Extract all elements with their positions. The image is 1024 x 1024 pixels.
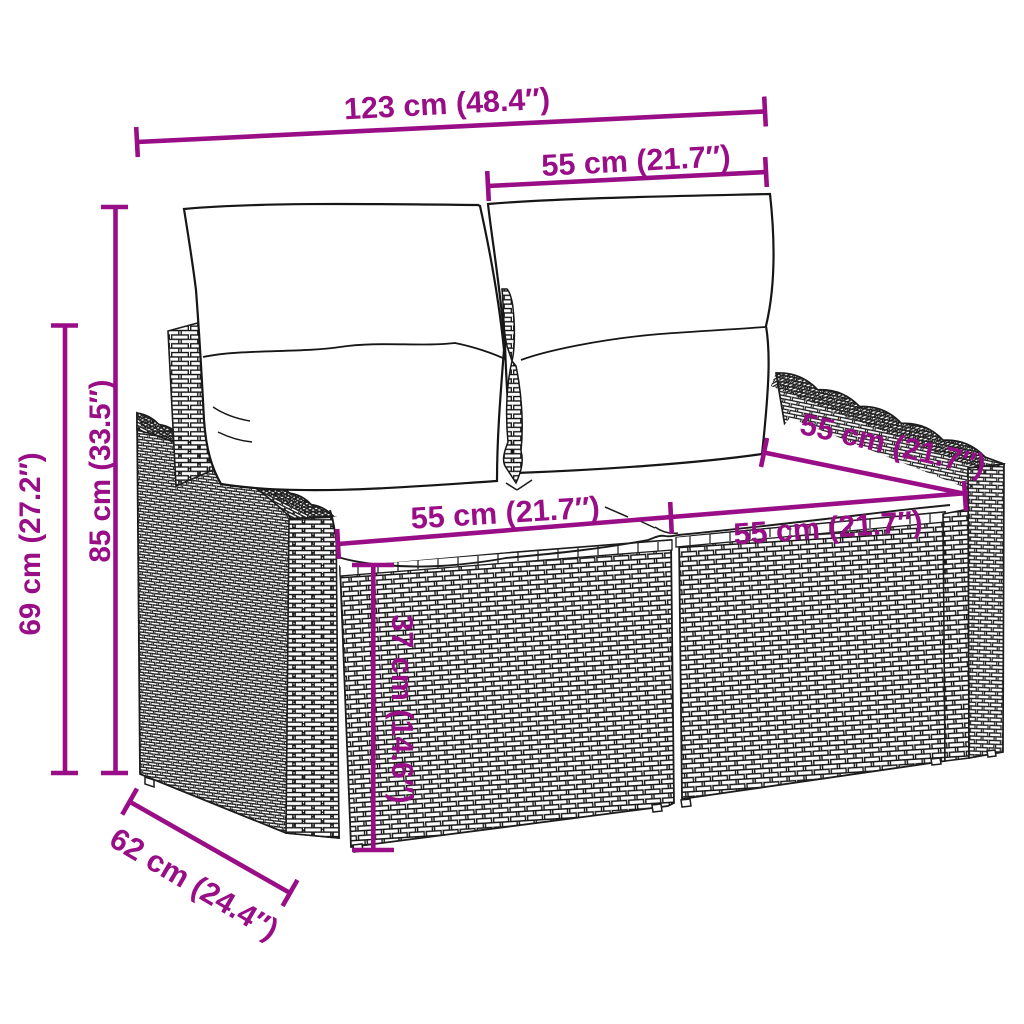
- svg-text:69 cm (27.2″): 69 cm (27.2″): [14, 452, 47, 635]
- svg-text:37 cm (14.6″): 37 cm (14.6″): [385, 614, 419, 803]
- svg-text:85 cm (33.5″): 85 cm (33.5″): [84, 379, 117, 562]
